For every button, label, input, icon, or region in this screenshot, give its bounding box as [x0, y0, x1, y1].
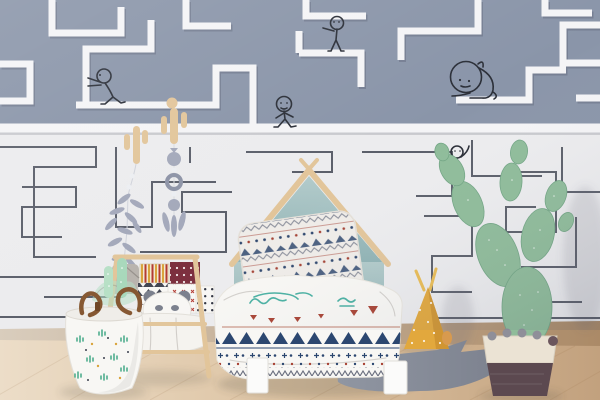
- lighting-overlay: [0, 0, 600, 330]
- duvet-dot-band: [216, 350, 402, 359]
- plant-pot: [483, 329, 558, 397]
- duvet-triangle-band: [216, 330, 402, 345]
- bedroom-scene: [0, 0, 600, 400]
- cactus-fruit: [442, 331, 452, 345]
- bedroom-photo: [0, 0, 600, 400]
- duvet-zigzag-band: [216, 367, 402, 376]
